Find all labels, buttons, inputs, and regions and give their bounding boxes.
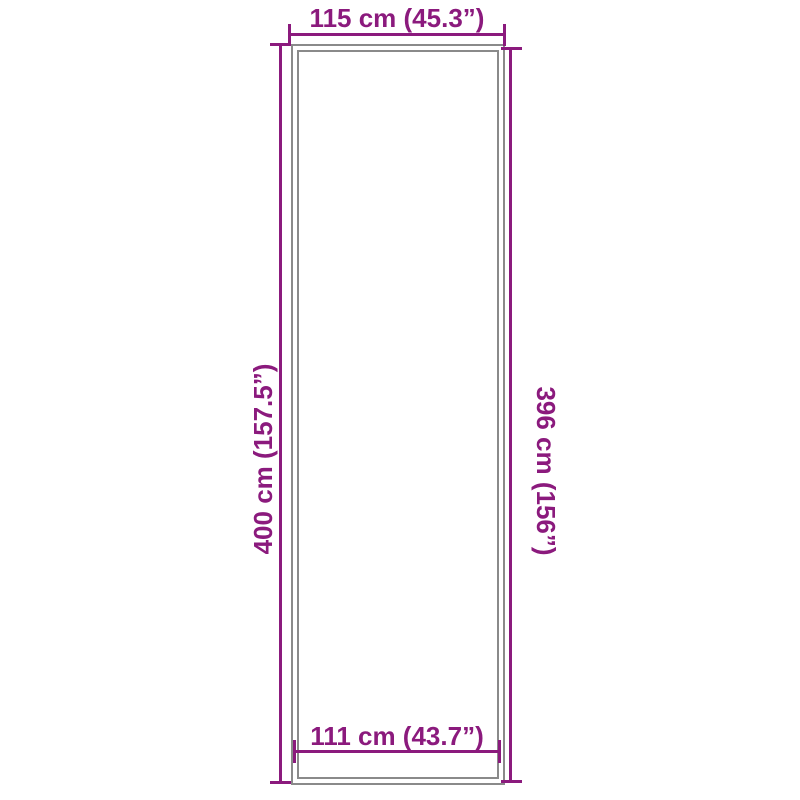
bottom-dimension-tick-left <box>293 740 296 763</box>
right-dimension-tick-top <box>501 47 522 50</box>
inner-height-label: 396 cm (156”) <box>533 386 559 555</box>
left-dimension-line <box>279 43 282 784</box>
bottom-dimension-tick-right <box>498 740 501 763</box>
left-dimension-tick-top <box>270 43 291 46</box>
mat-outer-outline <box>291 44 505 785</box>
outer-width-label: 115 cm (45.3”) <box>310 5 485 31</box>
top-dimension-line <box>290 33 505 36</box>
left-dimension-tick-bottom <box>270 781 291 784</box>
outer-height-label: 400 cm (157.5”) <box>250 364 276 555</box>
mat-inner-outline <box>297 50 499 779</box>
right-dimension-line <box>509 47 512 783</box>
right-dimension-tick-bottom <box>501 780 522 783</box>
product-dimension-diagram: 115 cm (45.3”) 400 cm (157.5”) 396 cm (1… <box>0 0 800 800</box>
inner-width-label: 111 cm (43.7”) <box>310 723 483 749</box>
top-dimension-tick-right <box>503 24 506 46</box>
